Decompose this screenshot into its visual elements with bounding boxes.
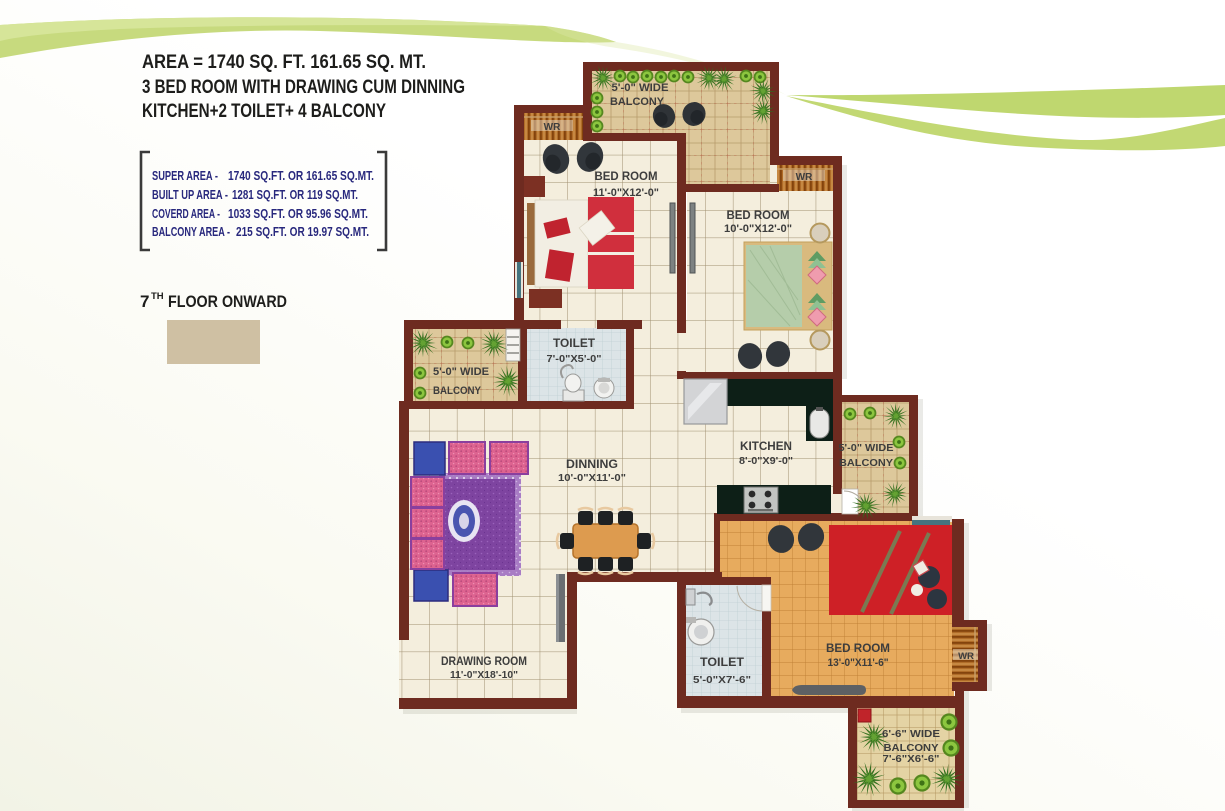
svg-text:BALCONY AREA -: BALCONY AREA - <box>152 225 230 239</box>
svg-text:1033 SQ.FT. OR 95.96 SQ.MT.: 1033 SQ.FT. OR 95.96 SQ.MT. <box>228 207 368 221</box>
svg-text:DINNING: DINNING <box>566 459 618 471</box>
svg-text:DRAWING ROOM: DRAWING ROOM <box>441 656 527 668</box>
svg-text:13'-0"X11'-6": 13'-0"X11'-6" <box>828 657 889 669</box>
svg-text:WR: WR <box>796 172 813 183</box>
svg-text:7: 7 <box>140 292 149 311</box>
svg-text:7'-6"X6'-6": 7'-6"X6'-6" <box>883 754 940 765</box>
svg-text:BUILT UP AREA -: BUILT UP AREA - <box>152 188 228 202</box>
svg-text:6'-6" WIDE: 6'-6" WIDE <box>882 728 940 740</box>
svg-text:8'-0"X9'-0": 8'-0"X9'-0" <box>739 455 793 467</box>
svg-text:215 SQ.FT. OR 19.97 SQ.MT.: 215 SQ.FT. OR 19.97 SQ.MT. <box>236 225 369 239</box>
svg-text:10'-0"X11'-0": 10'-0"X11'-0" <box>558 472 626 484</box>
svg-text:5'-0" WIDE: 5'-0" WIDE <box>839 442 894 454</box>
svg-text:BED ROOM: BED ROOM <box>727 208 790 222</box>
svg-text:10'-0"X12'-0": 10'-0"X12'-0" <box>724 223 792 235</box>
svg-text:BED ROOM: BED ROOM <box>826 641 890 655</box>
svg-text:BALCONY: BALCONY <box>610 96 665 108</box>
svg-text:BED ROOM: BED ROOM <box>595 169 658 183</box>
svg-text:7'-0"X5'-0": 7'-0"X5'-0" <box>547 353 602 365</box>
svg-text:TOILET: TOILET <box>553 338 595 350</box>
svg-text:BALCONY: BALCONY <box>884 742 939 754</box>
svg-text:WR: WR <box>958 651 974 662</box>
svg-text:TOILET: TOILET <box>700 657 744 669</box>
svg-text:3 BED ROOM WITH DRAWING CUM DI: 3 BED ROOM WITH DRAWING CUM DINNING <box>142 77 465 98</box>
svg-text:COVERD AREA -: COVERD AREA - <box>152 207 220 221</box>
svg-text:WR: WR <box>544 122 561 133</box>
svg-text:5'-0"X7'-6": 5'-0"X7'-6" <box>693 674 751 686</box>
svg-text:BALCONY: BALCONY <box>839 457 893 469</box>
svg-text:5'-0" WIDE: 5'-0" WIDE <box>612 82 669 94</box>
svg-text:11'-0"X12'-0": 11'-0"X12'-0" <box>593 187 659 199</box>
svg-text:BALCONY: BALCONY <box>433 385 482 397</box>
svg-text:1281 SQ.FT. OR 119 SQ.MT.: 1281 SQ.FT. OR 119 SQ.MT. <box>232 188 358 202</box>
svg-text:1740 SQ.FT. OR 161.65 SQ.MT.: 1740 SQ.FT. OR 161.65 SQ.MT. <box>228 169 374 183</box>
svg-text:FLOOR ONWARD: FLOOR ONWARD <box>168 292 287 311</box>
svg-text:11'-0"X18'-10": 11'-0"X18'-10" <box>450 669 518 681</box>
svg-text:TH: TH <box>151 291 164 302</box>
svg-text:SUPER AREA -: SUPER AREA - <box>152 169 218 183</box>
svg-text:5'-0" WIDE: 5'-0" WIDE <box>433 366 489 378</box>
svg-text:KITCHEN: KITCHEN <box>740 441 792 453</box>
svg-text:AREA = 1740 SQ. FT. 161.65 SQ: AREA = 1740 SQ. FT. 161.65 SQ. MT. <box>142 52 426 73</box>
svg-text:KITCHEN+2 TOILET+ 4 BALCONY: KITCHEN+2 TOILET+ 4 BALCONY <box>142 101 386 122</box>
